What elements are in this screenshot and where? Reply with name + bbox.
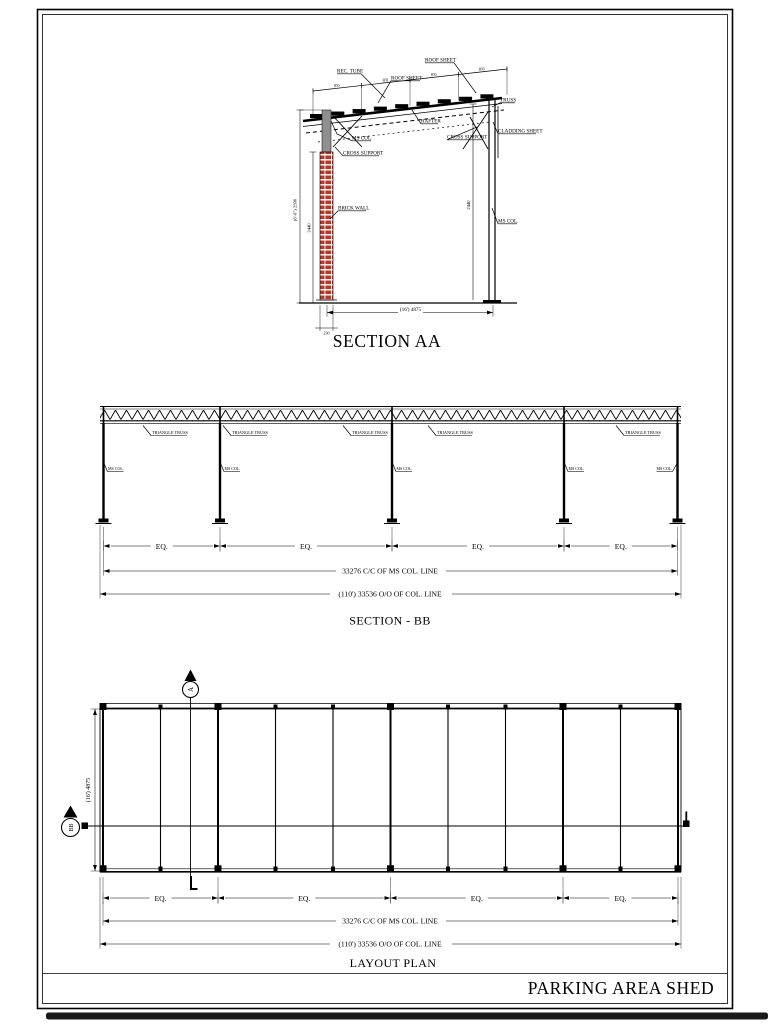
dim-bb-eq-2: EQ. [300, 542, 312, 551]
label-bb-ms-col-5: MS COL. [657, 466, 673, 471]
page-edge-shadow [46, 1013, 768, 1020]
dim-bb-oo: (110') 33536 O/O OF COL. LINE [338, 590, 442, 599]
dim-bb-eq-1: EQ. [156, 542, 168, 551]
dim-roof-seg-3: 8'0 [431, 72, 438, 78]
section-marker-top-label: A [187, 687, 195, 692]
label-ms-col-left: MS COL. [352, 136, 372, 142]
project-title: PARKING AREA SHED [528, 978, 715, 998]
dim-height-left-inner: 2440 [307, 223, 312, 233]
layout-plan-annotations: A BB (16') 4875 EQ. EQ. EQ. EQ. 33276 C/… [69, 687, 627, 970]
label-roof-sheet-1: ROOF SHEET [391, 76, 423, 82]
label-bb-ms-col-4: MS COL. [569, 466, 585, 471]
label-triangle-truss-5: TRIANGLE TRUSS [625, 430, 661, 435]
dim-bb-eq-3: EQ. [472, 542, 484, 551]
dim-plan-depth: (16') 4875 [85, 778, 92, 803]
dim-height-left-outer: (8'-6") 2590 [293, 198, 298, 221]
label-bb-ms-col-3: MS COL. [397, 466, 413, 471]
dim-roof-seg-2: 8'0 [382, 77, 389, 83]
dim-plan-oo: (110') 33536 O/O OF COL. LINE [338, 940, 442, 949]
label-brick-wall: BRICK WALL [338, 206, 369, 212]
dim-plan-cc: 33276 C/C OF MS COL. LINE [342, 917, 438, 926]
dim-roof-seg-1: 8'0 [334, 83, 341, 89]
label-roof-sheet-2: ROOF SHEET [425, 58, 457, 64]
dim-plan-eq-2: EQ. [298, 894, 310, 903]
section-marker-left-label: BB [69, 823, 75, 831]
inner-border [43, 15, 728, 1004]
label-truss: TRUSS [500, 98, 516, 104]
label-ms-col-right: MS COL. [498, 219, 518, 225]
label-triangle-truss-3: TRIANGLE TRUSS [352, 430, 388, 435]
dim-plan-eq-3: EQ. [471, 894, 483, 903]
cad-sheet: REC. TUBE ROOF SHEET ROOF SHEET TRUSS CL… [0, 0, 768, 1024]
label-triangle-truss-1: TRIANGLE TRUSS [152, 430, 188, 435]
dim-plan-eq-1: EQ. [154, 894, 166, 903]
label-rec-tube: REC. TUBE [337, 69, 363, 75]
label-triangle-truss-2: TRIANGLE TRUSS [232, 430, 268, 435]
label-cladding-sheet: CLADDING SHEET [498, 129, 543, 135]
section-bb-title: SECTION - BB [349, 614, 430, 628]
label-rafter: RAFTER [421, 119, 441, 125]
label-bb-ms-col-1: MS COL. [108, 466, 124, 471]
dim-bb-eq-4: EQ. [615, 542, 627, 551]
label-cross-support-left: CROSS SUPPORT [343, 151, 384, 157]
label-triangle-truss-4: TRIANGLE TRUSS [437, 430, 473, 435]
layout-plan-title: LAYOUT PLAN [350, 956, 437, 970]
label-cross-support-right: CROSS SUPPORT [447, 135, 488, 141]
dim-section-aa-width: (16') 4875 [400, 306, 422, 313]
dim-wall-thickness: 230 [324, 331, 330, 336]
dim-height-right: 2440 [466, 200, 471, 210]
dim-bb-cc: 33276 C/C OF MS COL. LINE [342, 567, 438, 576]
section-bb-annotations: TRIANGLE TRUSS TRIANGLE TRUSS TRIANGLE T… [108, 430, 672, 628]
outer-border [38, 10, 733, 1009]
dim-roof-seg-4: 8'0 [479, 66, 486, 72]
label-bb-ms-col-2: MS COL. [225, 466, 241, 471]
dim-plan-eq-4: EQ. [614, 894, 626, 903]
section-aa-title: SECTION AA [333, 331, 442, 351]
cad-linework [43, 63, 727, 974]
